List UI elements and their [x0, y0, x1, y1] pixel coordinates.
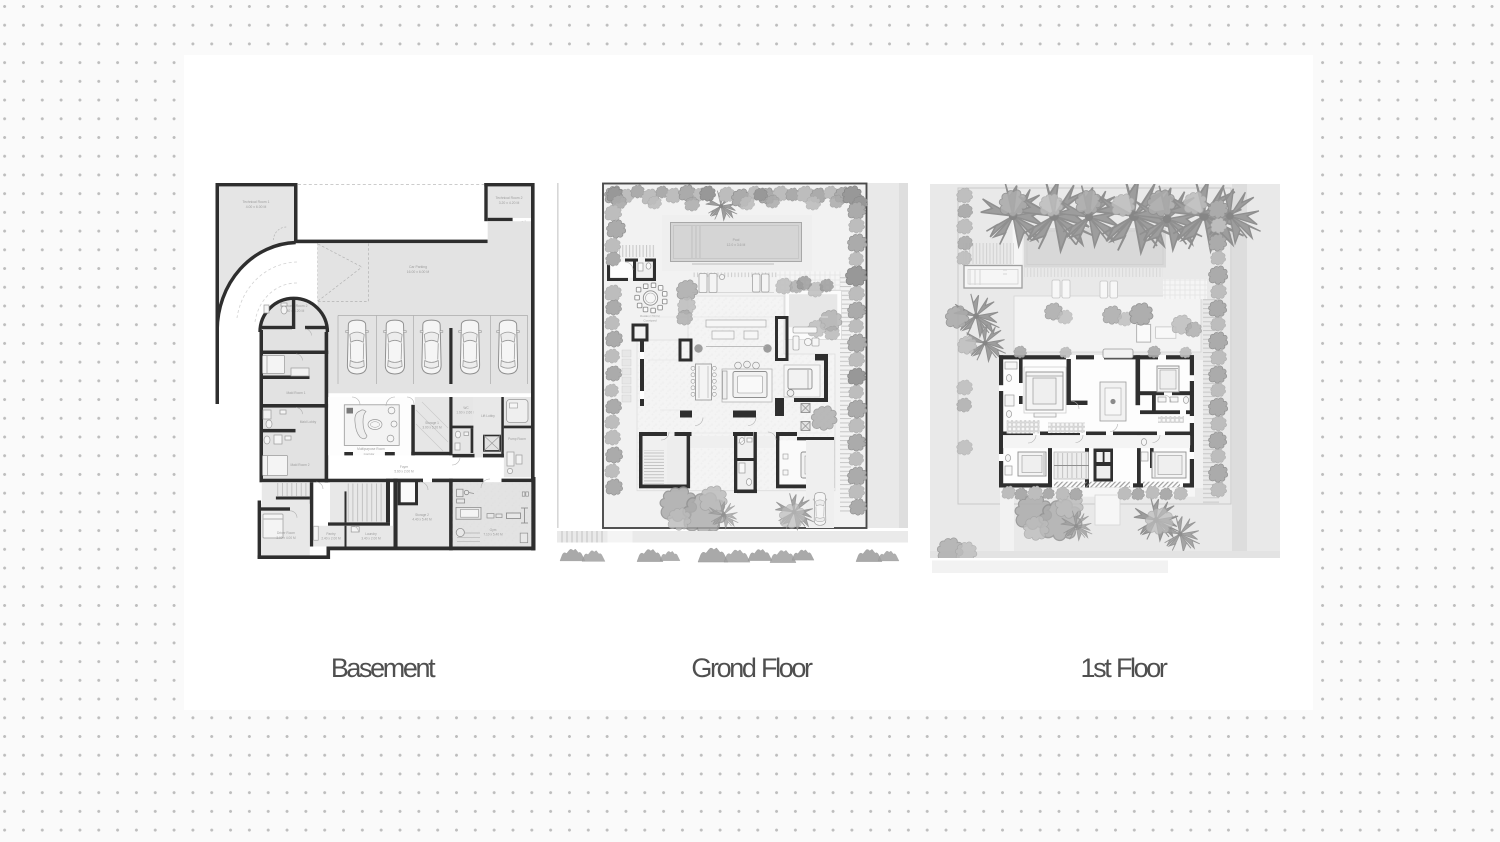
svg-text:16.00 x 6.00 M: 16.00 x 6.00 M: [407, 270, 430, 274]
svg-text:4.40 x 5.40 M: 4.40 x 5.40 M: [412, 518, 432, 522]
svg-text:Maid Room 1: Maid Room 1: [287, 391, 306, 395]
svg-text:4.00 x 6.00 M: 4.00 x 6.00 M: [246, 205, 267, 209]
svg-text:Storage 1: Storage 1: [425, 421, 439, 425]
svg-text:3.00 x 4.00 M: 3.00 x 4.00 M: [276, 536, 296, 540]
svg-text:Corridor: Corridor: [364, 452, 375, 456]
svg-text:5.60 x 2.00 M: 5.60 x 2.00 M: [394, 470, 414, 474]
svg-text:Driver Room: Driver Room: [277, 531, 295, 535]
svg-text:Storage 2: Storage 2: [415, 513, 429, 517]
svg-text:Maid Room 2: Maid Room 2: [291, 463, 310, 467]
svg-text:Laundry: Laundry: [365, 532, 377, 536]
svg-text:Technical Room 1: Technical Room 1: [243, 200, 270, 204]
svg-text:1.60 x 2.60 M: 1.60 x 2.60 M: [456, 411, 476, 415]
svg-text:Maid Lobby: Maid Lobby: [300, 420, 317, 424]
svg-text:WC: WC: [463, 406, 469, 410]
svg-text:12.0 x 3.6 M: 12.0 x 3.6 M: [727, 243, 746, 247]
svg-text:Multipurpose Room: Multipurpose Room: [357, 447, 385, 451]
svg-text:3.20 x 4.20 M: 3.20 x 4.20 M: [499, 201, 520, 205]
svg-text:Lift Lobby: Lift Lobby: [481, 414, 495, 418]
svg-text:7.10 x 5.40 M: 7.10 x 5.40 M: [483, 533, 503, 537]
svg-text:3.40 x 2.00 M: 3.40 x 2.00 M: [361, 537, 381, 541]
svg-text:Pantry: Pantry: [326, 532, 336, 536]
svg-text:Technical Room 2: Technical Room 2: [496, 196, 523, 200]
svg-text:Pool: Pool: [733, 238, 740, 242]
svg-text:Car Parking: Car Parking: [409, 265, 427, 269]
svg-text:Gym: Gym: [490, 528, 497, 532]
svg-text:2.40 x 2.00 M: 2.40 x 2.00 M: [321, 537, 341, 541]
svg-text:Courtyard: Courtyard: [643, 318, 657, 322]
svg-text:Pump Room: Pump Room: [508, 437, 526, 441]
svg-text:3.00 x 5.20 M: 3.00 x 5.20 M: [422, 426, 442, 430]
svg-text:Foyer: Foyer: [400, 465, 409, 469]
svg-text:Outdoor Dining: Outdoor Dining: [640, 314, 661, 318]
